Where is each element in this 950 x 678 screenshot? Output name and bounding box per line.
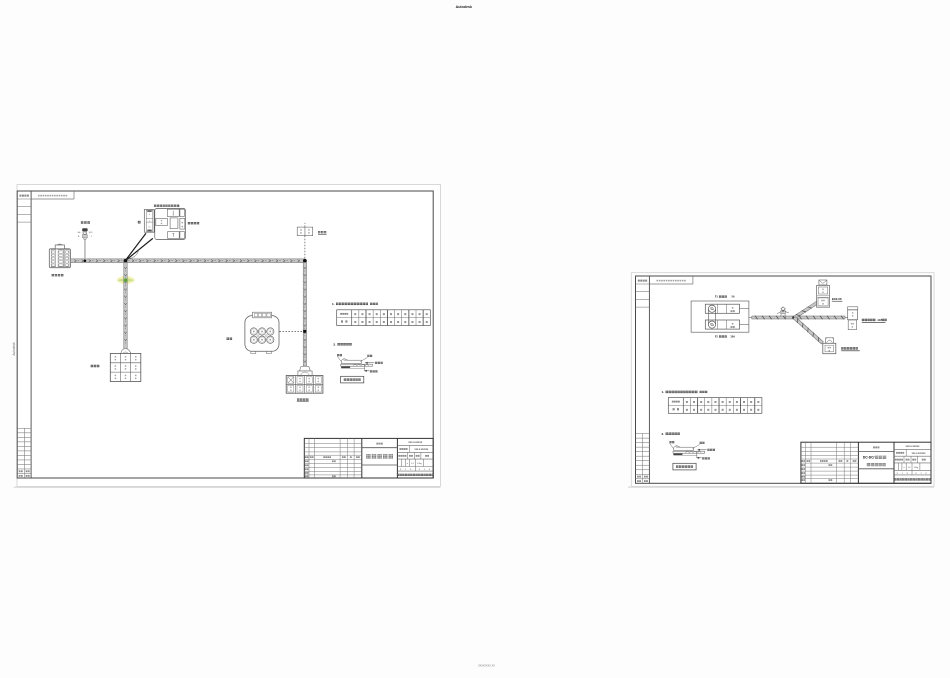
svg-text:XXX-X-XXXXX: XXX-X-XXXXX — [408, 442, 422, 444]
svg-text:1.5kg: 1.5kg — [417, 463, 422, 465]
svg-text:Autodesk: Autodesk — [12, 342, 16, 356]
svg-text:1: 1 — [920, 473, 921, 475]
svg-text:-12V: -12V — [877, 319, 882, 322]
svg-text:2.: 2. — [662, 432, 665, 436]
svg-text:20A: 20A — [731, 335, 736, 338]
svg-text:1: 1 — [902, 473, 903, 475]
svg-text:m: m — [149, 227, 151, 229]
svg-text:1:2: 1:2 — [411, 463, 414, 465]
svg-text:1: 1 — [405, 469, 406, 471]
svg-text:Mv: Mv — [78, 232, 81, 234]
svg-text:1.: 1. — [662, 390, 665, 394]
svg-text:2.: 2. — [333, 342, 336, 346]
svg-text:1.5kg: 1.5kg — [914, 467, 919, 469]
svg-text:XXX-X-XXXXX: XXX-X-XXXXX — [906, 446, 920, 448]
svg-text:XXX-X-XXXXXX: XXX-X-XXXXXX — [414, 449, 429, 451]
svg-text:BXX.X8: BXX.X8 — [832, 297, 842, 301]
svg-text:rb: rb — [304, 222, 306, 225]
svg-text:1.: 1. — [332, 302, 335, 306]
svg-text:1: 1 — [424, 469, 425, 471]
svg-text:5A: 5A — [732, 296, 735, 299]
svg-text:XXX-X-XXXXXX: XXX-X-XXXXXX — [912, 453, 927, 455]
svg-text:DC-DC/: DC-DC/ — [863, 455, 875, 459]
svg-text:1:2: 1:2 — [908, 467, 911, 469]
svg-text:Autodesk: Autodesk — [456, 5, 472, 9]
svg-text:xxxxxxxx.xx: xxxxxxxx.xx — [478, 664, 495, 668]
